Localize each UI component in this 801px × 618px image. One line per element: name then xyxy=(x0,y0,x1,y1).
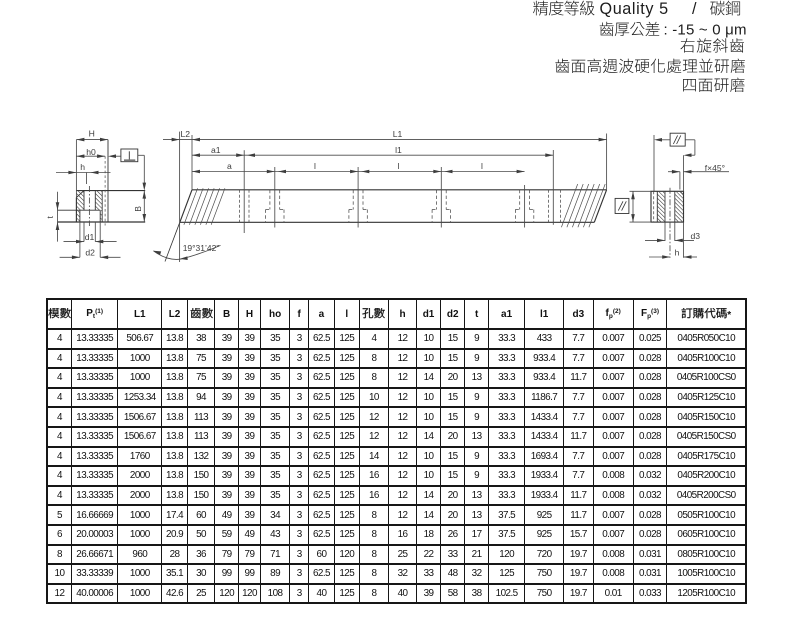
svg-text:a: a xyxy=(227,161,232,171)
svg-text:t: t xyxy=(45,216,55,219)
svg-text:Quality 5: Quality 5 xyxy=(600,0,669,18)
svg-text:: -15 ~ 0 μm: : -15 ~ 0 μm xyxy=(664,22,747,39)
svg-text:l: l xyxy=(398,161,400,171)
svg-text:h: h xyxy=(80,162,85,172)
svg-text:l: l xyxy=(314,161,316,171)
svg-text:f×45°: f×45° xyxy=(705,163,725,173)
svg-text:L2: L2 xyxy=(181,129,191,139)
svg-text:h: h xyxy=(675,247,680,257)
svg-text:19°31’42”: 19°31’42” xyxy=(183,243,220,253)
svg-text:B: B xyxy=(133,206,143,212)
svg-text:/: / xyxy=(692,0,697,18)
svg-text:l1: l1 xyxy=(395,145,402,155)
svg-text:d3: d3 xyxy=(691,231,701,241)
svg-text:L1: L1 xyxy=(393,129,403,139)
svg-text:d2: d2 xyxy=(85,248,95,258)
svg-text:h0: h0 xyxy=(86,147,96,157)
svg-text:a1: a1 xyxy=(211,145,221,155)
svg-text:d1: d1 xyxy=(85,232,95,242)
svg-text:l: l xyxy=(481,161,483,171)
svg-text:H: H xyxy=(89,129,95,139)
